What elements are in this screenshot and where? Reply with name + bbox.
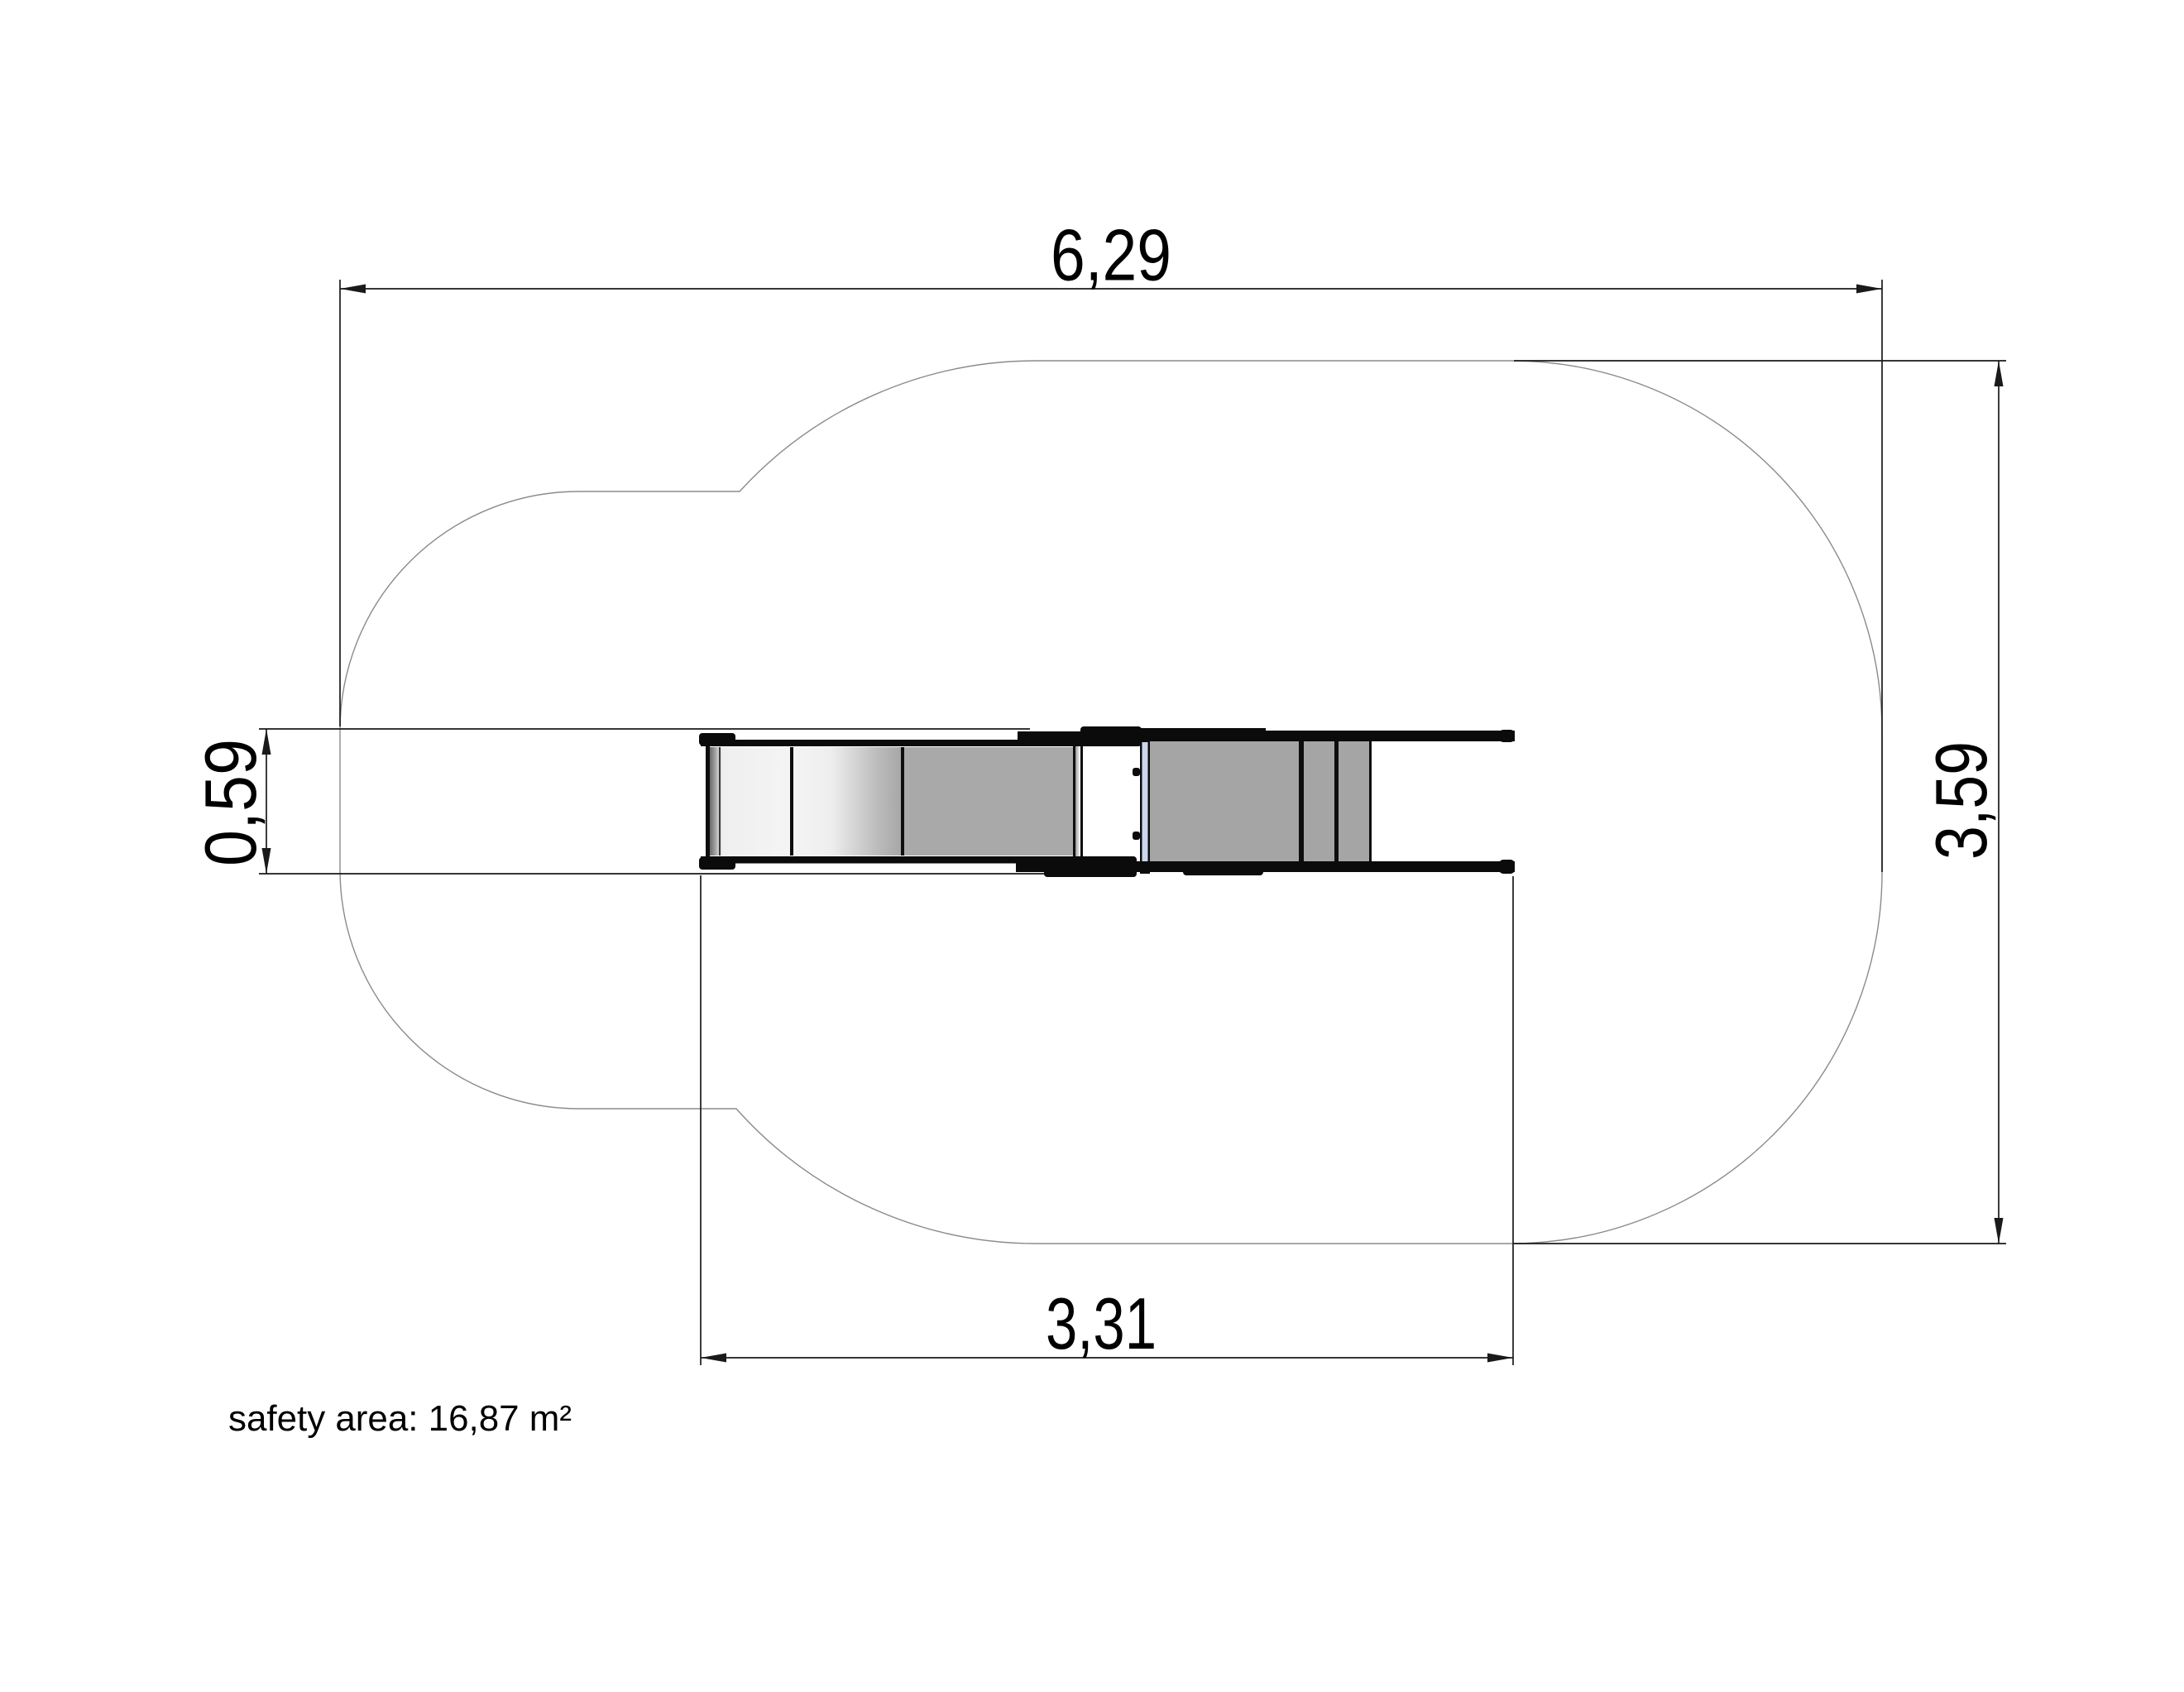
- svg-text:0,59: 0,59: [189, 739, 271, 866]
- svg-text:safety area: 16,87 m²: safety area: 16,87 m²: [228, 1399, 572, 1439]
- svg-text:3,59: 3,59: [1920, 741, 2002, 860]
- svg-text:3,31: 3,31: [1046, 1282, 1157, 1364]
- svg-text:6,29: 6,29: [1051, 214, 1171, 296]
